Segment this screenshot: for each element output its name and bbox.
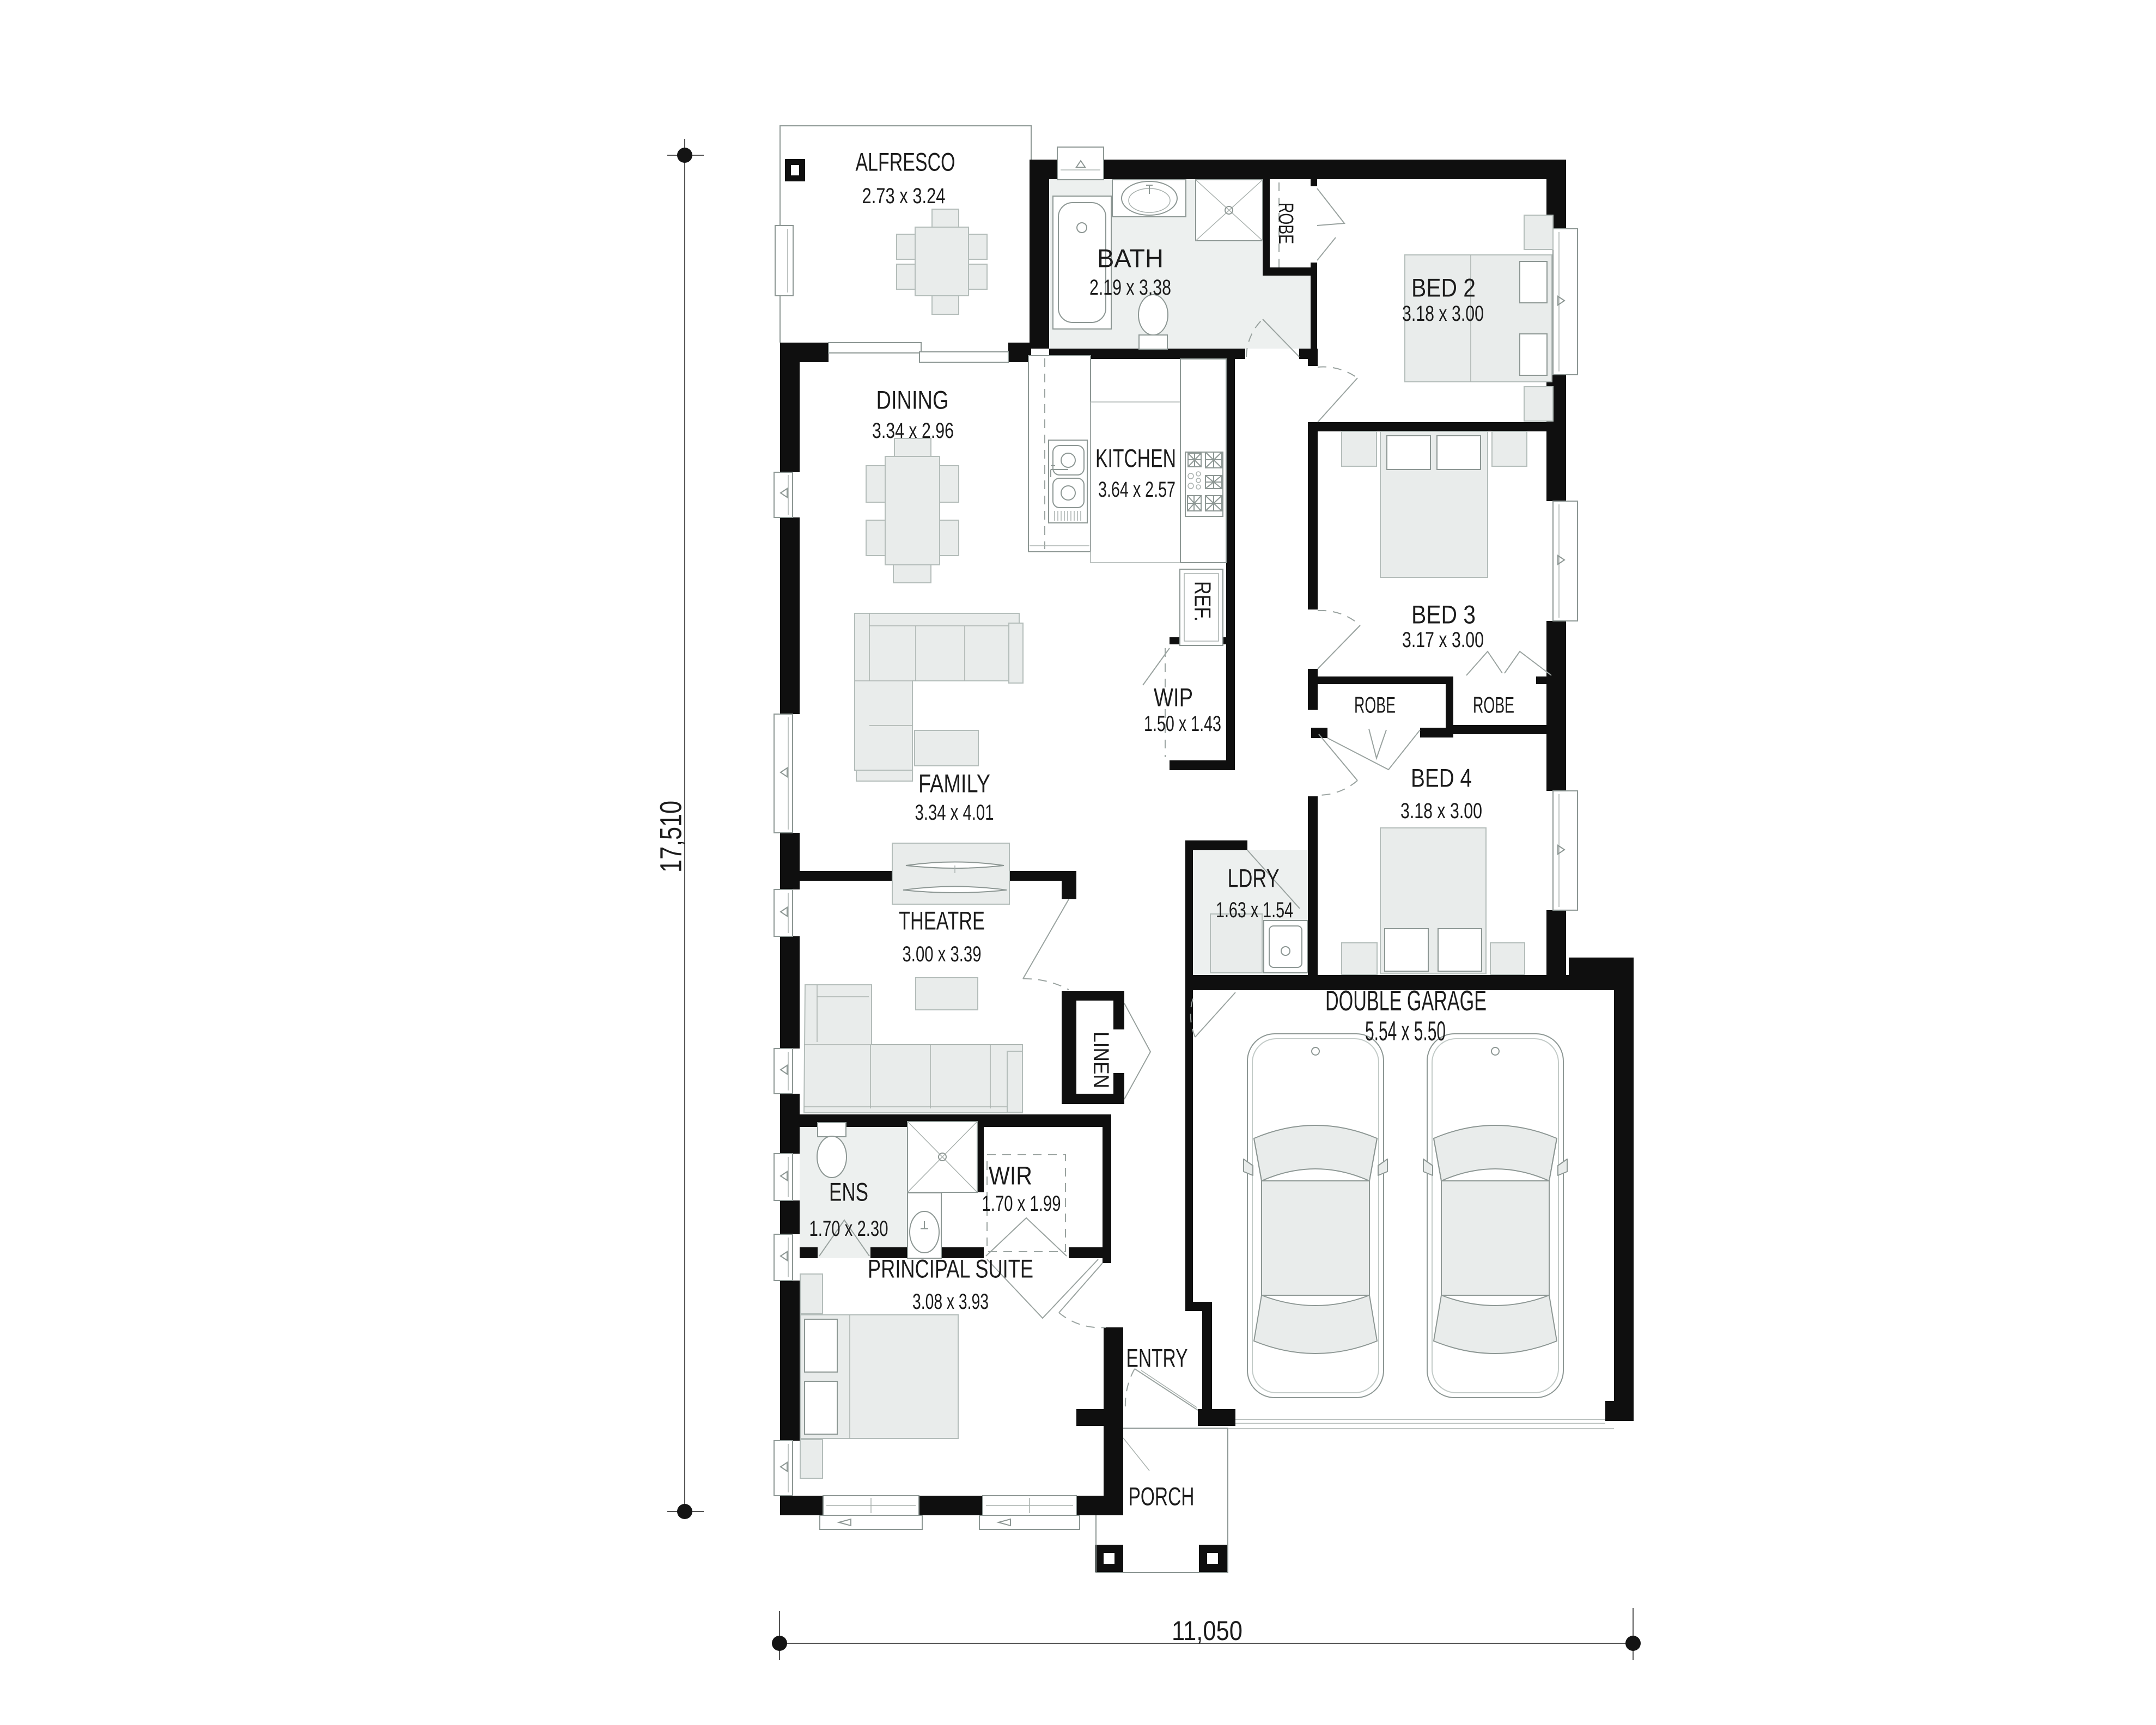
- svg-text:ENS: ENS: [829, 1178, 868, 1206]
- svg-text:3.17 x 3.00: 3.17 x 3.00: [1402, 628, 1484, 652]
- svg-text:3.00 x 3.39: 3.00 x 3.39: [903, 942, 982, 966]
- svg-text:2.19 x 3.38: 2.19 x 3.38: [1089, 276, 1171, 300]
- svg-text:THEATRE: THEATRE: [899, 906, 985, 935]
- svg-text:1.63 x 1.54: 1.63 x 1.54: [1216, 898, 1293, 922]
- svg-text:3.64 x 2.57: 3.64 x 2.57: [1098, 478, 1176, 502]
- svg-text:BED 4: BED 4: [1411, 764, 1472, 793]
- svg-text:3.18 x 3.00: 3.18 x 3.00: [1402, 302, 1484, 326]
- svg-text:ROBE: ROBE: [1473, 692, 1514, 718]
- svg-text:3.34 x 2.96: 3.34 x 2.96: [872, 419, 954, 443]
- svg-text:11,050: 11,050: [1172, 1616, 1243, 1646]
- svg-text:FAMILY: FAMILY: [918, 769, 990, 798]
- svg-text:BED 3: BED 3: [1411, 600, 1476, 629]
- svg-text:1.50 x 1.43: 1.50 x 1.43: [1144, 712, 1221, 736]
- svg-text:ALFRESCO: ALFRESCO: [856, 148, 955, 176]
- svg-text:ROBE: ROBE: [1274, 203, 1297, 244]
- svg-text:WIR: WIR: [989, 1161, 1032, 1190]
- svg-text:DINING: DINING: [876, 386, 949, 415]
- svg-text:REF.: REF.: [1190, 581, 1216, 621]
- svg-text:2.73 x 3.24: 2.73 x 3.24: [862, 184, 946, 208]
- svg-text:BATH: BATH: [1097, 244, 1164, 273]
- svg-text:1.70 x 1.99: 1.70 x 1.99: [982, 1192, 1061, 1216]
- svg-text:LDRY: LDRY: [1228, 864, 1280, 893]
- svg-text:3.34 x 4.01: 3.34 x 4.01: [915, 801, 994, 825]
- svg-text:DOUBLE GARAGE: DOUBLE GARAGE: [1325, 985, 1487, 1017]
- svg-text:BED 2: BED 2: [1411, 273, 1476, 302]
- svg-text:KITCHEN: KITCHEN: [1095, 444, 1176, 473]
- svg-text:17,510: 17,510: [654, 801, 688, 873]
- svg-text:3.18 x 3.00: 3.18 x 3.00: [1400, 799, 1482, 823]
- svg-text:ROBE: ROBE: [1354, 692, 1396, 718]
- svg-text:PRINCIPAL SUITE: PRINCIPAL SUITE: [868, 1254, 1033, 1283]
- svg-text:3.08 x 3.93: 3.08 x 3.93: [912, 1290, 989, 1314]
- svg-text:WIP: WIP: [1154, 683, 1193, 712]
- svg-text:ENTRY: ENTRY: [1126, 1344, 1188, 1373]
- svg-text:1.70 x 2.30: 1.70 x 2.30: [809, 1217, 888, 1241]
- svg-text:LINEN: LINEN: [1089, 1032, 1113, 1088]
- svg-text:5.54 x 5.50: 5.54 x 5.50: [1365, 1016, 1446, 1046]
- svg-text:PORCH: PORCH: [1129, 1482, 1195, 1511]
